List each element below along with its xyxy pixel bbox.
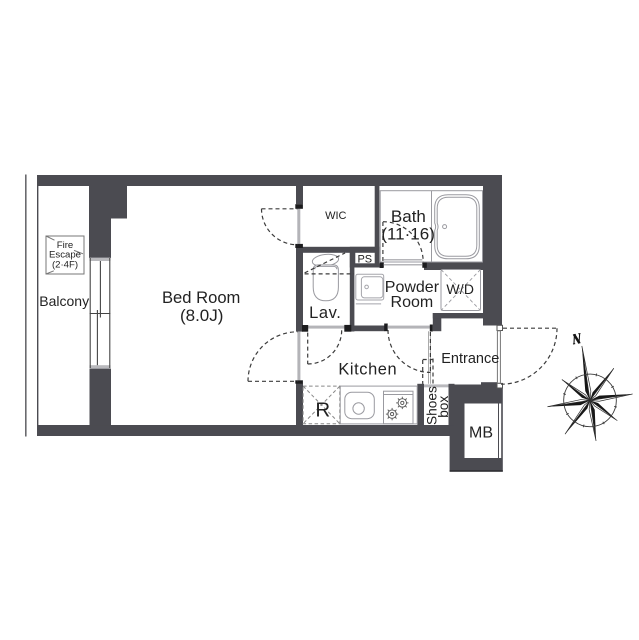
svg-text:Bed Room: Bed Room: [162, 288, 240, 307]
svg-text:Bath: Bath: [391, 207, 426, 226]
svg-text:(2·4F): (2·4F): [52, 260, 78, 271]
svg-text:Balcony: Balcony: [39, 293, 89, 309]
svg-text:R: R: [315, 399, 330, 422]
svg-text:WIC: WIC: [325, 210, 346, 222]
svg-text:Lav.: Lav.: [309, 304, 341, 322]
svg-text:box: box: [436, 396, 451, 418]
svg-text:(8.0J): (8.0J): [180, 306, 223, 325]
svg-text:Kitchen: Kitchen: [338, 360, 397, 378]
svg-text:Room: Room: [391, 294, 434, 311]
svg-text:Entrance: Entrance: [441, 351, 499, 367]
svg-text:PS: PS: [357, 254, 372, 266]
svg-text:W/D: W/D: [446, 281, 474, 297]
svg-text:MB: MB: [469, 424, 493, 441]
svg-text:(11·16): (11·16): [381, 225, 435, 244]
